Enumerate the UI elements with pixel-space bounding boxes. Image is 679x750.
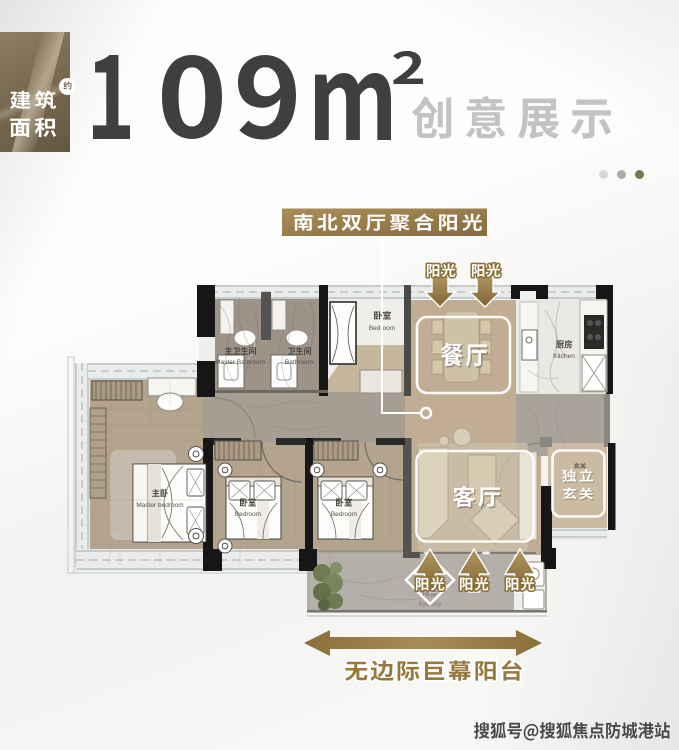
svg-text:Master bedroom: Master bedroom [136, 502, 183, 509]
svg-text:Master Bathroom: Master Bathroom [215, 359, 265, 366]
svg-text:Kitchen: Kitchen [553, 353, 575, 360]
svg-text:Bathroom: Bathroom [285, 359, 313, 366]
svg-text:Bedroom: Bedroom [235, 511, 261, 518]
svg-text:Bedroom: Bedroom [331, 511, 357, 518]
